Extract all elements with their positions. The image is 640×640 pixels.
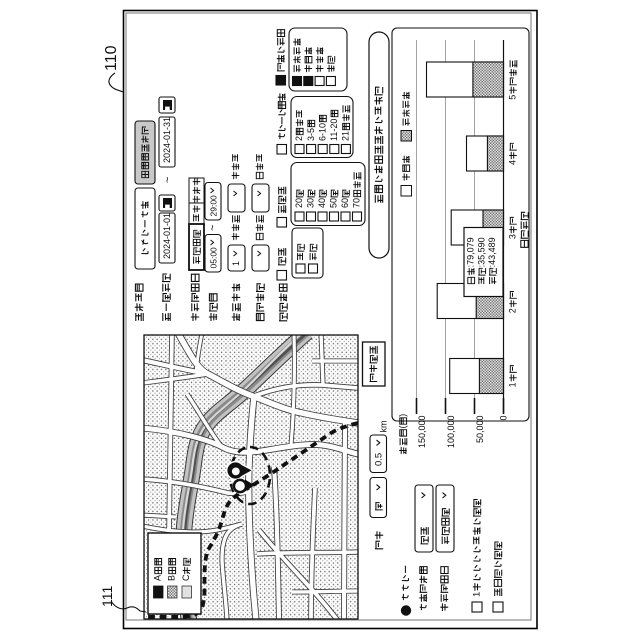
svg-text:40: 40: [317, 198, 327, 208]
svg-text:60: 60: [340, 198, 350, 208]
svg-text:1: 1: [508, 382, 518, 387]
svg-text:0.5: 0.5: [374, 453, 385, 466]
svg-text:(: (: [398, 426, 408, 429]
svg-text:1: 1: [472, 592, 483, 597]
svg-text:20: 20: [294, 198, 304, 208]
svg-text:0: 0: [499, 415, 509, 420]
svg-text:05:00: 05:00: [208, 247, 218, 269]
svg-text:70: 70: [352, 198, 362, 208]
svg-text:2: 2: [508, 308, 518, 313]
svg-text:29:00: 29:00: [208, 195, 218, 217]
svg-text:3-5: 3-5: [306, 128, 316, 141]
svg-text:km: km: [379, 421, 389, 433]
svg-text:B: B: [167, 575, 177, 581]
svg-text::79,079: :79,079: [466, 237, 476, 267]
svg-text:4: 4: [508, 160, 518, 165]
svg-text:11-20: 11-20: [329, 119, 339, 141]
svg-text:2024-01-01: 2024-01-01: [162, 213, 172, 259]
svg-text:~: ~: [207, 225, 219, 231]
svg-text:A: A: [153, 575, 163, 581]
svg-text:3: 3: [508, 234, 518, 239]
svg-text:100,000: 100,000: [446, 415, 456, 448]
svg-text:5: 5: [508, 95, 518, 100]
svg-text:110: 110: [103, 45, 120, 71]
svg-text::43,489: :43,489: [487, 237, 497, 267]
svg-text:2: 2: [294, 136, 304, 141]
svg-text::35,590: :35,590: [477, 237, 487, 267]
svg-text:50: 50: [329, 198, 339, 208]
svg-text:1: 1: [231, 261, 241, 266]
svg-text:~: ~: [162, 177, 174, 183]
svg-text:150,000: 150,000: [417, 415, 427, 448]
svg-text:21: 21: [341, 131, 351, 141]
svg-text:50,000: 50,000: [475, 415, 485, 443]
svg-text:): ): [398, 414, 408, 417]
svg-text:2024-01-31: 2024-01-31: [162, 117, 172, 163]
svg-text:6-10: 6-10: [317, 123, 327, 141]
svg-text:C: C: [181, 574, 191, 581]
svg-text:30: 30: [306, 198, 316, 208]
